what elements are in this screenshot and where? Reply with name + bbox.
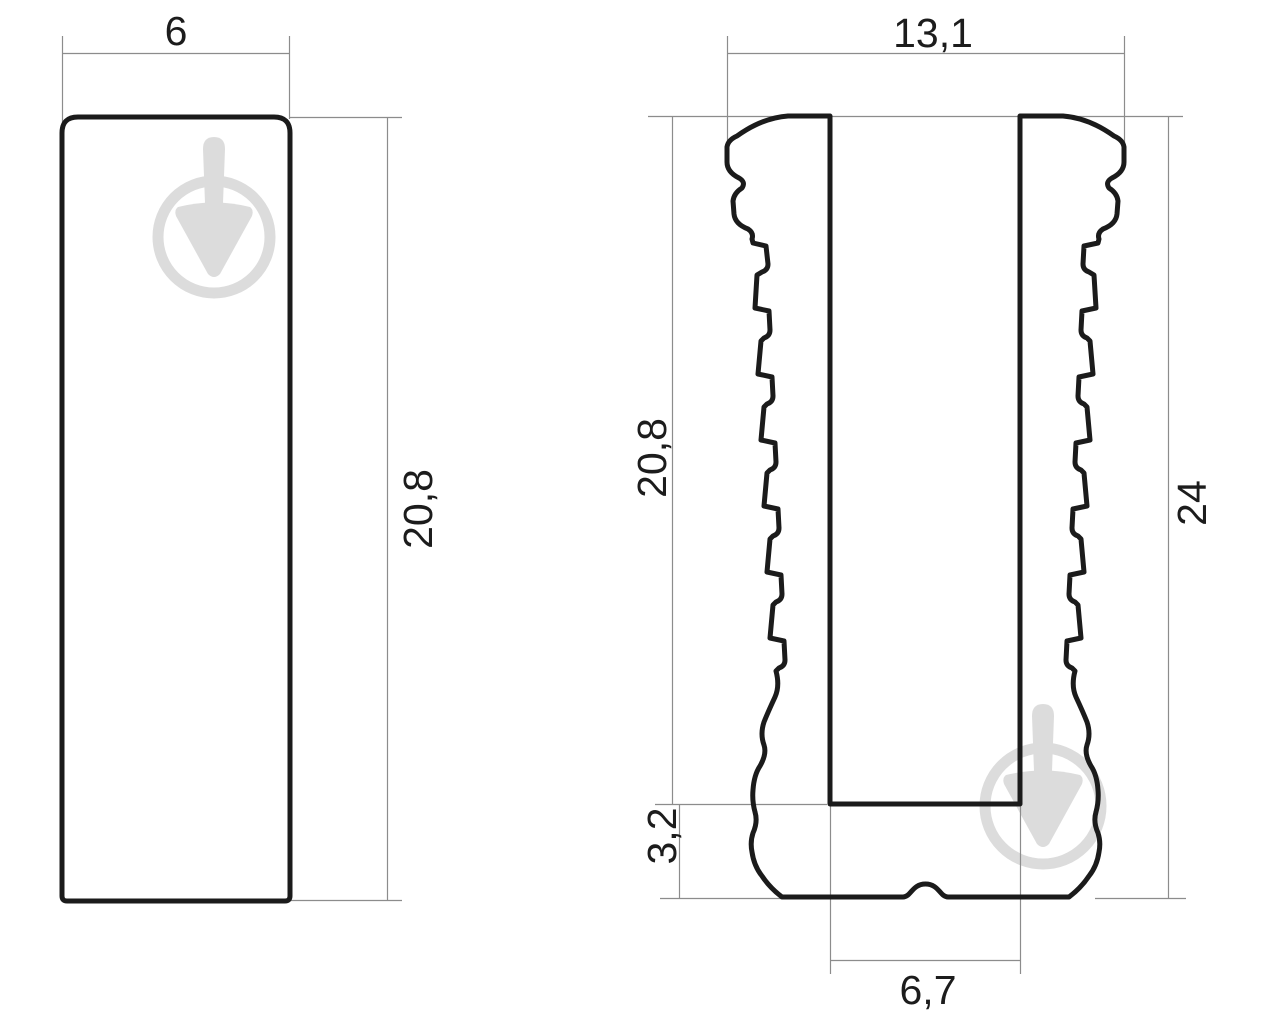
watermark-trowel-blade (1003, 771, 1082, 848)
left-view-dimension-lines (62, 36, 402, 901)
flat-bar-outline (62, 117, 290, 901)
dim-label-width: 6 (165, 8, 188, 54)
right-view: 13,1 20,8 3,2 24 6,7 (629, 10, 1215, 1013)
watermark-trowel-icon-left (158, 137, 270, 293)
watermark-trowel-handle (203, 137, 225, 203)
technical-drawing-canvas: 6 20,8 13,1 (0, 0, 1280, 1024)
dim-label-total-height: 24 (1169, 480, 1215, 526)
right-view-dimension-lines (648, 36, 1186, 974)
dim-label-height: 20,8 (395, 469, 441, 549)
dim-label-top-width: 13,1 (893, 10, 973, 56)
watermark-trowel-blade (175, 203, 252, 278)
watermark-trowel-handle (1032, 704, 1054, 771)
watermark-trowel-icon-right (985, 704, 1101, 864)
dim-label-slot-width: 6,7 (900, 967, 957, 1013)
dim-label-base-thickness: 3,2 (639, 808, 685, 865)
dim-label-slot-depth: 20,8 (629, 418, 675, 498)
left-view: 6 20,8 (62, 8, 441, 901)
